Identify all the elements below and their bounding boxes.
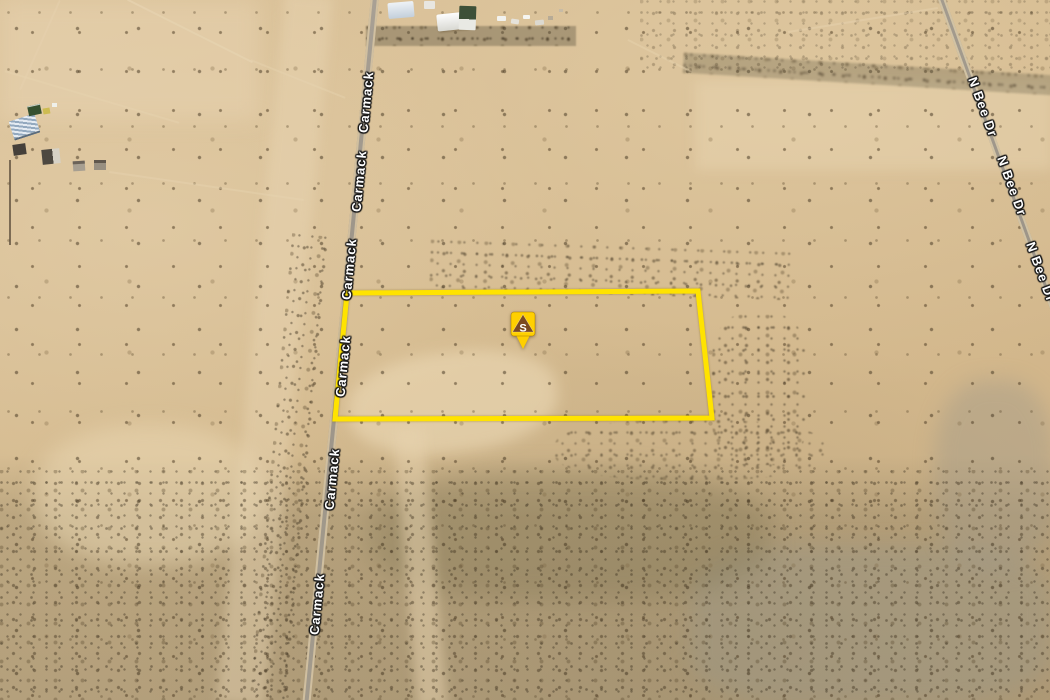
- terrain-scrub-top-right-corner: [640, 0, 1050, 70]
- terrain-scrub-band-below-parcel: [555, 420, 825, 480]
- debris: [559, 9, 563, 12]
- trailer: [424, 1, 435, 9]
- vehicle: [511, 18, 520, 24]
- satellite-map-canvas[interactable]: S Carmack Carmack Carmack Carmack Carmac…: [0, 0, 1050, 700]
- building-dark-canopy: [12, 143, 26, 156]
- building-shed: [73, 161, 86, 172]
- marker-letter: S: [519, 323, 526, 335]
- debris: [52, 103, 57, 107]
- power-line: [9, 160, 11, 245]
- debris: [548, 16, 553, 20]
- vehicle: [535, 20, 544, 26]
- building-shed: [94, 160, 106, 170]
- vehicle: [497, 16, 506, 21]
- equipment-yellow: [43, 107, 51, 114]
- terrain-shrub-speckles-bottom: [0, 470, 1050, 700]
- vehicle: [523, 15, 530, 19]
- building-dark-canopy: [41, 148, 60, 165]
- building-green-roof: [459, 6, 477, 31]
- building-tent: [387, 1, 414, 19]
